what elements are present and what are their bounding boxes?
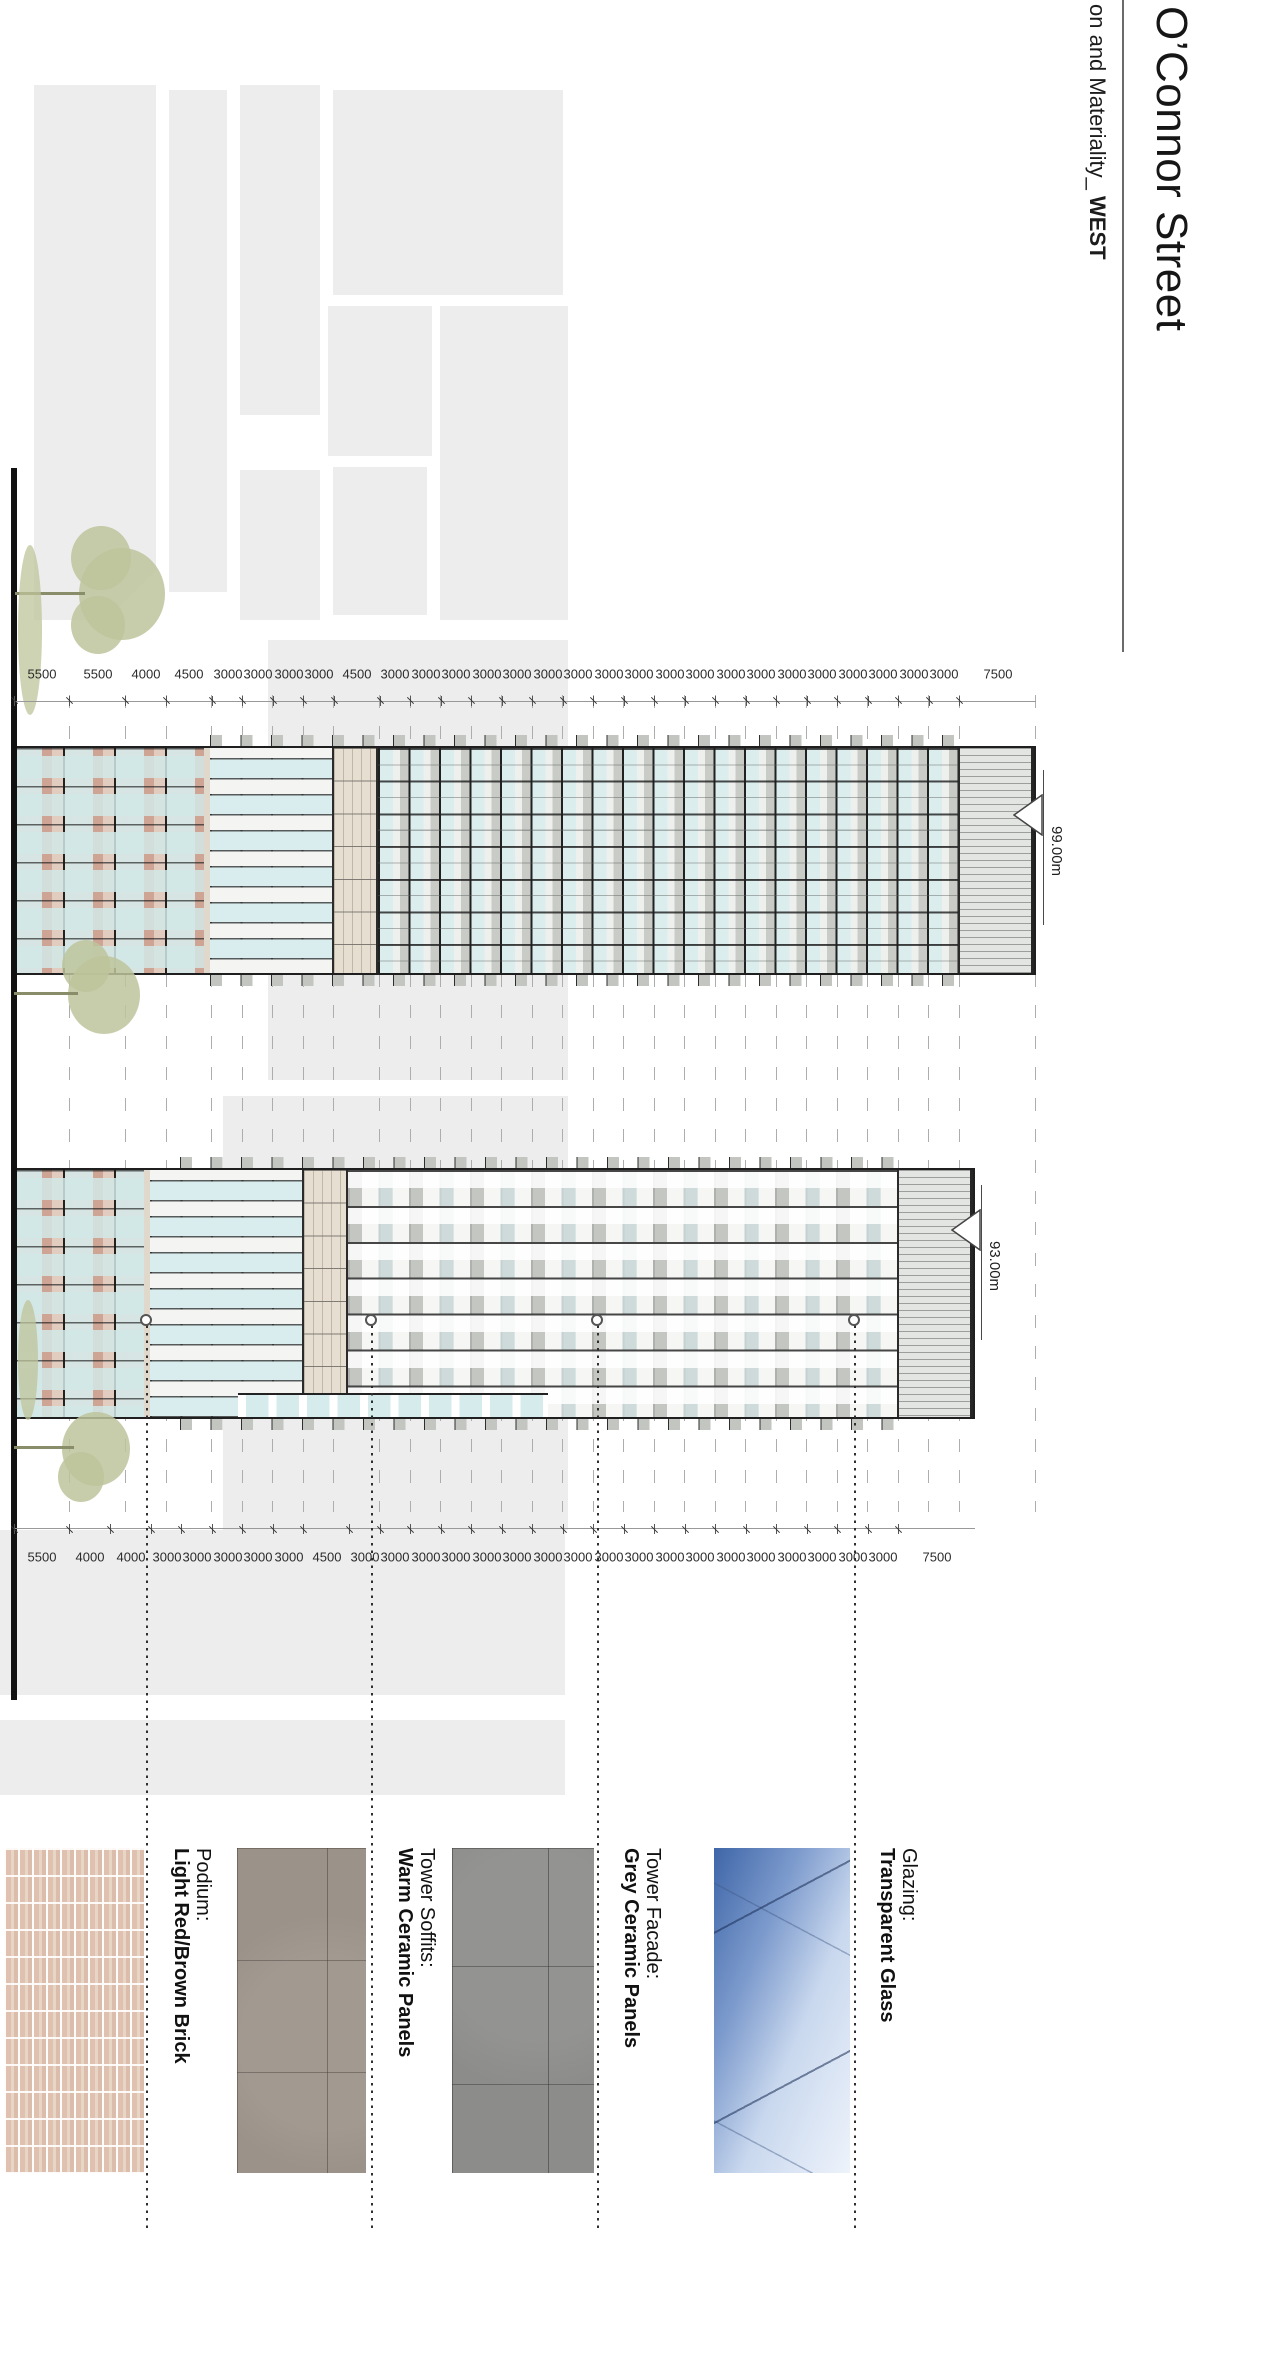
subtitle-orientation: WEST xyxy=(1085,196,1110,260)
dim-value: 3000 xyxy=(564,1550,593,1565)
dim-value: 5500 xyxy=(28,1550,57,1565)
dim-segment: 3000 xyxy=(716,660,747,701)
dim-value: 3000 xyxy=(655,1550,684,1565)
tower-93-soffit-band xyxy=(302,1170,348,1417)
dim-value: 3000 xyxy=(564,667,593,682)
dim-segment: 3000 xyxy=(594,660,625,701)
dim-value: 3000 xyxy=(686,667,715,682)
dim-value: 3000 xyxy=(838,1550,867,1565)
dim-segment: 3000 xyxy=(838,1529,869,1570)
dim-value: 4000 xyxy=(132,667,161,682)
dim-value: 3000 xyxy=(533,667,562,682)
level-datum-icon xyxy=(1013,794,1043,836)
dim-value: 7500 xyxy=(922,1550,951,1565)
tower-99-low-rise xyxy=(210,748,332,973)
tower-93-elevation xyxy=(14,1168,975,1419)
dim-value: 7500 xyxy=(983,667,1012,682)
sheet-subtitle: on and Materiality_ WEST xyxy=(1084,4,1110,260)
level-datum-icon xyxy=(951,1209,981,1251)
dim-value: 3000 xyxy=(777,1550,806,1565)
dim-value: 3000 xyxy=(747,667,776,682)
dim-segment: 3000 xyxy=(624,1529,655,1570)
dim-value: 3000 xyxy=(716,1550,745,1565)
dim-value: 3000 xyxy=(213,667,242,682)
legend-category: Glazing: xyxy=(898,1848,920,2268)
dim-segment: 3000 xyxy=(350,1529,381,1570)
dim-segment: 3000 xyxy=(273,660,304,701)
legend-entry-tower-facade: Tower Facade: Grey Ceramic Panels xyxy=(619,1848,664,2268)
dim-value: 3000 xyxy=(716,667,745,682)
swatch-transparent-glass xyxy=(714,1848,850,2173)
dim-value: 3000 xyxy=(381,1550,410,1565)
tower-99-roof-plant xyxy=(958,748,1034,973)
dim-value: 3000 xyxy=(274,667,303,682)
dim-value: 3000 xyxy=(777,667,806,682)
tree xyxy=(14,1408,130,1504)
dim-segment: 3000 xyxy=(563,660,594,701)
dim-value: 4500 xyxy=(343,667,372,682)
dim-segment: 3000 xyxy=(212,1529,243,1570)
dim-segment: 3000 xyxy=(441,1529,472,1570)
dim-value: 3000 xyxy=(274,1550,303,1565)
tower-99-podium-brick xyxy=(12,748,210,973)
dim-value: 3000 xyxy=(869,667,898,682)
leader-glazing xyxy=(854,1318,856,2230)
legend-category: Tower Facade: xyxy=(642,1848,664,2268)
tower-99-fins-left xyxy=(210,735,958,746)
dim-value: 3000 xyxy=(838,667,867,682)
dim-value: 5500 xyxy=(83,667,112,682)
dim-value: 3000 xyxy=(625,1550,654,1565)
dim-value: 3000 xyxy=(686,1550,715,1565)
plan-block xyxy=(440,306,568,620)
subtitle-text: on and Materiality_ xyxy=(1085,4,1110,196)
tower-99-fins-right xyxy=(210,975,958,986)
dim-segment: 3000 xyxy=(838,660,869,701)
dim-value: 3000 xyxy=(899,667,928,682)
dim-segment: 3000 xyxy=(533,660,564,701)
plan-block xyxy=(328,306,432,456)
dim-segment: 3000 xyxy=(243,1529,274,1570)
plan-block xyxy=(328,85,568,300)
dim-segment: 3000 xyxy=(304,660,335,701)
dim-value: 3000 xyxy=(350,1550,379,1565)
dim-segment: 3000 xyxy=(411,1529,442,1570)
tower-93-glazed-strip xyxy=(238,1393,548,1417)
level-marker-line xyxy=(1043,770,1044,925)
dim-value: 4000 xyxy=(76,1550,105,1565)
dim-segment: 3000 xyxy=(777,1529,808,1570)
dim-segment: 7500 xyxy=(899,1529,975,1570)
dim-segment: 3000 xyxy=(746,660,777,701)
dim-segment: 3000 xyxy=(868,1529,899,1570)
elevation-sheet: 7500300030003000300030003000300030003000… xyxy=(0,0,1280,2355)
dim-value: 3000 xyxy=(747,1550,776,1565)
tower-93-typical-floors xyxy=(348,1170,897,1417)
dim-segment: 3000 xyxy=(868,660,899,701)
dim-value: 3000 xyxy=(625,667,654,682)
dim-segment: 3000 xyxy=(746,1529,777,1570)
tower-93-fins-left xyxy=(180,1157,897,1168)
dim-value: 3000 xyxy=(930,667,959,682)
dim-value: 3000 xyxy=(381,667,410,682)
dim-value: 3000 xyxy=(411,667,440,682)
dim-segment: 3000 xyxy=(807,1529,838,1570)
dim-segment: 3000 xyxy=(685,1529,716,1570)
dim-segment: 3000 xyxy=(243,660,274,701)
dim-segment: 3000 xyxy=(212,660,243,701)
dim-segment: 4500 xyxy=(167,660,213,701)
dim-segment: 3000 xyxy=(380,1529,411,1570)
dim-value: 3000 xyxy=(503,1550,532,1565)
dim-segment: 5500 xyxy=(14,660,70,701)
leader-tower-soffits xyxy=(371,1318,373,2230)
plan-block xyxy=(164,85,232,597)
dim-value: 4500 xyxy=(175,667,204,682)
swatch-grey-ceramic xyxy=(452,1848,594,2173)
dim-segment: 3000 xyxy=(411,660,442,701)
dim-value: 3000 xyxy=(152,1550,181,1565)
dim-value: 3000 xyxy=(472,1550,501,1565)
dim-segment: 3000 xyxy=(807,660,838,701)
dim-value: 4000 xyxy=(116,1550,145,1565)
dim-segment: 3000 xyxy=(380,660,411,701)
plan-block xyxy=(240,470,320,620)
leader-podium xyxy=(146,1318,148,2230)
dim-value: 3000 xyxy=(213,1550,242,1565)
dim-segment: 3000 xyxy=(533,1529,564,1570)
dim-value: 3000 xyxy=(183,1550,212,1565)
page-title: O’Connor Street xyxy=(1146,6,1196,331)
dim-segment: 3000 xyxy=(929,660,960,701)
dim-value: 3000 xyxy=(533,1550,562,1565)
dim-segment: 3000 xyxy=(182,1529,213,1570)
dim-segment: 3000 xyxy=(151,1529,182,1570)
dim-segment: 3000 xyxy=(777,660,808,701)
tower-99-typical-floors xyxy=(378,748,958,973)
plan-block xyxy=(0,1720,565,1795)
dim-value: 4500 xyxy=(312,1550,341,1565)
legend-material: Grey Ceramic Panels xyxy=(619,1848,642,2268)
dim-value: 3000 xyxy=(655,667,684,682)
dim-value: 3000 xyxy=(503,667,532,682)
plan-block xyxy=(328,462,432,620)
shrub xyxy=(18,1300,38,1420)
title-rule xyxy=(1122,0,1124,652)
leader-tower-facade xyxy=(597,1318,599,2230)
dim-segment: 3000 xyxy=(472,660,503,701)
dim-segment: 3000 xyxy=(899,660,930,701)
dim-segment: 3000 xyxy=(441,660,472,701)
level-value: 93.00m xyxy=(986,1241,1003,1291)
dim-segment: 3000 xyxy=(472,1529,503,1570)
dim-value: 5500 xyxy=(28,667,57,682)
plan-block xyxy=(240,85,320,415)
dim-value: 3000 xyxy=(808,667,837,682)
dim-value: 3000 xyxy=(244,667,273,682)
dim-segment: 3000 xyxy=(655,1529,686,1570)
level-marker-line xyxy=(981,1185,982,1340)
dim-segment: 4000 xyxy=(70,1529,111,1570)
tree xyxy=(14,950,140,1050)
dim-segment: 4500 xyxy=(304,1529,350,1570)
dim-value: 3000 xyxy=(305,667,334,682)
legend-material: Transparent Glass xyxy=(875,1848,898,2268)
dimension-string-tower-99: 7500300030003000300030003000300030003000… xyxy=(14,660,1036,702)
dimension-string-tower-93: 7500300030003000300030003000300030003000… xyxy=(14,1528,975,1570)
dim-segment: 3000 xyxy=(685,660,716,701)
dim-segment: 3000 xyxy=(273,1529,304,1570)
dim-segment: 5500 xyxy=(70,660,126,701)
legend-category: Podium: xyxy=(192,1848,214,2268)
tower-93-fins-right xyxy=(180,1419,897,1430)
dim-value: 3000 xyxy=(411,1550,440,1565)
legend-material: Light Red/Brown Brick xyxy=(169,1848,192,2268)
legend-material: Warm Ceramic Panels xyxy=(393,1848,416,2268)
dim-segment: 4500 xyxy=(334,660,380,701)
dim-segment: 3000 xyxy=(563,1529,594,1570)
tower-93-roof-plant xyxy=(897,1170,973,1417)
dim-segment: 4000 xyxy=(126,660,167,701)
dim-value: 3000 xyxy=(808,1550,837,1565)
dim-segment: 3000 xyxy=(502,1529,533,1570)
swatch-brick xyxy=(4,1848,144,2173)
dim-segment: 7500 xyxy=(960,660,1036,701)
sheet-canvas: 7500300030003000300030003000300030003000… xyxy=(0,0,1280,2355)
level-value: 99.00m xyxy=(1048,826,1065,876)
legend-entry-podium: Podium: Light Red/Brown Brick xyxy=(169,1848,214,2268)
dim-segment: 3000 xyxy=(716,1529,747,1570)
tower-99-soffit-band xyxy=(332,748,378,973)
dim-segment: 3000 xyxy=(502,660,533,701)
dim-value: 3000 xyxy=(869,1550,898,1565)
tower-93-low-rise xyxy=(150,1170,302,1417)
dim-segment: 3000 xyxy=(655,660,686,701)
dim-value: 3000 xyxy=(442,667,471,682)
legend-entry-glazing: Glazing: Transparent Glass xyxy=(875,1848,920,2268)
legend-category: Tower Soffits: xyxy=(416,1848,438,2268)
dim-segment: 5500 xyxy=(14,1529,70,1570)
dim-segment: 3000 xyxy=(624,660,655,701)
tower-99-elevation xyxy=(14,746,1036,975)
swatch-warm-ceramic xyxy=(237,1848,366,2173)
dim-value: 3000 xyxy=(244,1550,273,1565)
dim-value: 3000 xyxy=(472,667,501,682)
dim-value: 3000 xyxy=(594,667,623,682)
dim-value: 3000 xyxy=(442,1550,471,1565)
legend-entry-tower-soffits: Tower Soffits: Warm Ceramic Panels xyxy=(393,1848,438,2268)
